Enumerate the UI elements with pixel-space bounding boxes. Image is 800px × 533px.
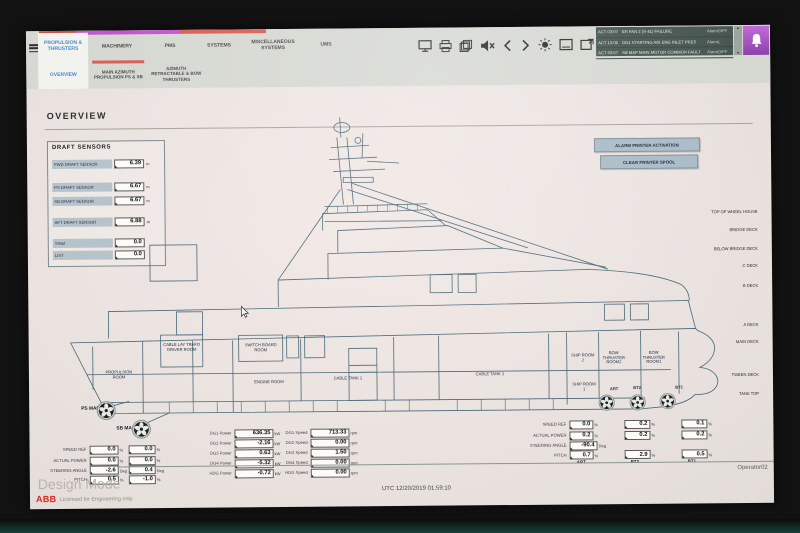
- license-note: Licensed for Engineering only: [60, 496, 133, 503]
- hdg-power-value: -0.72: [235, 469, 274, 478]
- alarm-text: SB MAP MAIN MOTOR COMMON FAULT: [622, 50, 707, 56]
- dg2-speed-value: 0.00: [310, 438, 349, 447]
- deck-label-tween-deck: TWEEN DECK: [687, 372, 759, 378]
- bt1-propeller-icon: [659, 393, 676, 410]
- alarm-time: ACT 03:57: [596, 51, 622, 56]
- screen-switch-icon[interactable]: [580, 38, 594, 50]
- alarm-bell-button[interactable]: [743, 26, 769, 55]
- dg4-speed-value: 0.00: [311, 458, 350, 467]
- room-label-switchboard: SWITCH BOARD ROOM: [241, 343, 281, 353]
- deck-label-a-deck: A DECK: [686, 322, 758, 328]
- unit-label: %: [652, 452, 656, 457]
- bow-pitch-label: PITCH: [510, 452, 567, 457]
- unit-label: %: [157, 477, 161, 482]
- deck-label-b-deck: B DECK: [686, 283, 758, 289]
- room-label-ship-room2: SHIP ROOM 2: [570, 353, 596, 363]
- sb-actual-power-value: 0.0: [129, 456, 156, 465]
- screen-icon[interactable]: [559, 38, 573, 50]
- dg2-power-value: -2.16: [234, 439, 273, 448]
- unit-label: Deg: [157, 468, 164, 473]
- dg1-speed-label: DG1 Speed: [279, 430, 307, 435]
- tab-label: PROPULSION & THRUSTERS: [38, 41, 88, 53]
- header-toolbar: [418, 34, 598, 56]
- tab-label: MACHINERY: [102, 44, 132, 50]
- subtab-label: OVERVIEW: [50, 72, 77, 78]
- tab-systems[interactable]: SYSTEMS: [196, 33, 242, 59]
- hmi-screen: PROPULSION & THRUSTERS MACHINERY PMS SYS…: [26, 25, 774, 509]
- alarm-status: AlarmL: [707, 39, 733, 44]
- dg3-speed-label: DG3 Speed: [280, 450, 308, 455]
- subtab-label: AZIMUTH RETRACTABLE & BOW THRUSTERS: [150, 66, 202, 83]
- printer-icon[interactable]: [439, 39, 452, 52]
- alarm-scrollbar[interactable]: ▲▼: [734, 26, 742, 55]
- alarm-status: AlarmDIFF: [707, 28, 733, 33]
- thruster-label-art: ART: [602, 387, 626, 392]
- dg2-power-label: DG2 Power: [198, 440, 232, 445]
- speaker-mute-icon[interactable]: [480, 39, 495, 52]
- art-pitch-value: 0.7: [570, 450, 594, 459]
- alarm-time: ACT 03:07: [596, 29, 622, 34]
- room-label-cable-tank2: CABLE TANK 2: [323, 376, 373, 381]
- utc-clock: UTC 12/20/2019 01:59:10: [382, 486, 451, 493]
- steering-angle-label: STEERING ANGLE: [32, 467, 87, 472]
- dg3-speed-value: 1.50: [311, 448, 350, 457]
- art-speed-ref-value: 0.0: [569, 420, 593, 429]
- tab-label: UMS: [320, 43, 331, 49]
- speed-ref-label: SPEED REF: [32, 447, 87, 452]
- ship-diagram: PROPULSION ROOM CABLE LAY TRAFO DRIVER R…: [47, 100, 766, 451]
- dg1-speed-value: 713.33: [310, 428, 349, 437]
- laptop-hinge: [0, 519, 800, 533]
- unit-label: %: [594, 422, 598, 427]
- art-actual-power-value: 0.2: [569, 431, 593, 440]
- unit-label: %: [120, 447, 124, 452]
- subtab-azimuth-retractable-bow[interactable]: AZIMUTH RETRACTABLE & BOW THRUSTERS: [150, 60, 202, 88]
- bt2-actual-power-value: 0.2: [624, 430, 650, 439]
- thruster-label-bt1: BT1: [668, 385, 690, 390]
- tab-machinery[interactable]: MACHINERY: [92, 34, 142, 60]
- tab-miscellaneous-systems[interactable]: MISCELLANEOUS SYSTEMS: [244, 33, 302, 60]
- unit-label: %: [157, 458, 161, 463]
- ps-speed-ref-value: 0.0: [90, 445, 119, 454]
- subtab-label: MAIN AZIMUTH PROPULSION PS & SB: [92, 69, 144, 80]
- design-mode-watermark: Design Mode: [38, 475, 121, 492]
- monitor-icon[interactable]: [418, 39, 432, 52]
- tab-label: MISCELLANEOUS SYSTEMS: [244, 40, 302, 52]
- unit-label: %: [651, 422, 655, 427]
- alarm-text: ER FAN 2 (S-41) FAILURE: [622, 29, 707, 35]
- room-label-ship-room1: SHIP ROOM 1: [571, 382, 597, 392]
- tab-propulsion-thrusters[interactable]: PROPULSION & THRUSTERS: [38, 33, 88, 61]
- dg1-power-label: DG1 Power: [197, 430, 231, 435]
- ps-steering-angle-value: -2.6: [90, 465, 119, 474]
- subtab-main-azimuth-propulsion[interactable]: MAIN AZIMUTH PROPULSION PS & SB: [92, 60, 144, 88]
- unit-label: Deg: [599, 443, 606, 448]
- hdg-speed-label: HDG Speed: [280, 470, 308, 475]
- brightness-icon[interactable]: [538, 38, 552, 52]
- tab-pms[interactable]: PMS: [150, 34, 190, 60]
- dg3-power-label: DG3 Power: [198, 450, 232, 455]
- alarm-status: AlarmDIFF: [707, 50, 733, 55]
- art-propeller-icon: [598, 394, 615, 411]
- alarm-row[interactable]: ACT 03:57 SB MAP MAIN MOTOR COMMON FAULT…: [596, 47, 733, 59]
- thruster-label-bt2: BT2: [626, 386, 648, 391]
- tab-label: SYSTEMS: [207, 44, 231, 50]
- prev-arrow-icon[interactable]: [502, 39, 513, 52]
- room-label-engine: ENGINE ROOM: [244, 380, 294, 385]
- menu-bar: PROPULSION & THRUSTERS MACHINERY PMS SYS…: [26, 25, 770, 89]
- ps-map-propeller-icon: [96, 400, 116, 420]
- alarm-bell-icon: [749, 33, 762, 48]
- subtab-overview[interactable]: OVERVIEW: [38, 61, 88, 89]
- room-label-cable-lay: CABLE LAY TRAFO DRIVER ROOM: [162, 343, 202, 353]
- bow-speed-ref-label: SPEED REF: [509, 422, 566, 427]
- deck-label-main-deck: MAIN DECK: [687, 339, 759, 345]
- alarm-text: DG1 STARTING AIR ENG INLET PRES: [622, 39, 707, 45]
- bow-steering-angle-label: STEERING ANGLE: [510, 443, 567, 448]
- unit-label: %: [708, 432, 712, 437]
- monitor-screen: PROPULSION & THRUSTERS MACHINERY PMS SYS…: [26, 25, 774, 509]
- pages-icon[interactable]: [459, 39, 473, 52]
- unit-label: %: [709, 452, 713, 457]
- dg2-speed-label: DG2 Speed: [280, 440, 308, 445]
- scroll-up-icon[interactable]: ▲: [736, 26, 740, 30]
- alarm-list: ACT 03:07 ER FAN 2 (S-41) FAILURE AlarmD…: [596, 26, 733, 56]
- bt2-speed-ref-value: 0.2: [624, 419, 650, 428]
- unit-label: %: [120, 458, 124, 463]
- hdg-power-label: HDG Power: [198, 470, 232, 475]
- room-label-bow-thruster-room2: BOW THRUSTER ROOM2: [599, 351, 629, 365]
- unit-label: %: [594, 433, 598, 438]
- operator-name: Operator02: [737, 465, 767, 471]
- deck-label-top-of-wheel-house: TOP OF WHEEL HOUSE: [686, 209, 758, 215]
- unit-label: rpm: [351, 440, 358, 445]
- bt1-speed-ref-value: 0.1: [681, 419, 707, 428]
- unit-label: %: [157, 447, 161, 452]
- sb-pitch-value: -1.0: [129, 475, 156, 484]
- bt2-pitch-value: 2.9: [625, 450, 651, 459]
- mouse-cursor: [240, 305, 249, 318]
- actual-power-label: ACTUAL POWER: [32, 458, 87, 463]
- deck-label-below-bridge-deck: BELOW BRIDGE DECK: [686, 246, 758, 252]
- unit-label: %: [651, 433, 655, 438]
- dg3-power-value: 0.63: [235, 449, 274, 458]
- hdg-speed-value: 0.00: [311, 468, 350, 477]
- room-label-cable-tank1: CABLE TANK 1: [465, 372, 515, 377]
- ps-actual-power-value: 0.0: [90, 456, 119, 465]
- bt2-propeller-icon: [629, 394, 646, 411]
- tab-ums[interactable]: UMS: [306, 32, 346, 58]
- unit-label: Deg: [120, 468, 127, 473]
- next-arrow-icon[interactable]: [520, 38, 531, 51]
- deck-label-tank-top: TANK TOP: [687, 391, 759, 397]
- sb-speed-ref-value: 0.0: [129, 445, 156, 454]
- tab-label: PMS: [165, 44, 176, 50]
- room-label-propulsion: PROPULSION ROOM: [101, 370, 137, 380]
- ship-outline: [47, 100, 766, 451]
- abb-logo: ABB: [36, 494, 56, 504]
- dg1-power-value: 636.35: [234, 429, 273, 438]
- bow-actual-power-label: ACTUAL POWER: [509, 433, 566, 438]
- unit-label: rpm: [351, 450, 358, 455]
- unit-label: %: [595, 453, 599, 458]
- unit-label: %: [708, 421, 712, 426]
- alarm-time: ACT 13:05: [596, 40, 622, 45]
- art-steering-angle-value: -90.4: [570, 441, 598, 450]
- deck-label-c-deck: C DECK: [686, 263, 758, 269]
- room-label-bow-thruster-room1: BOW THRUSTER ROOM1: [639, 351, 669, 365]
- dg4-power-value: -5.32: [235, 459, 274, 468]
- bt1-actual-power-value: 0.2: [681, 430, 707, 439]
- unit-label: rpm: [350, 430, 357, 435]
- scroll-down-icon[interactable]: ▼: [736, 51, 740, 55]
- unit-label: rpm: [351, 470, 358, 475]
- deck-label-bridge-deck: BRIDGE DECK: [686, 227, 758, 233]
- bt1-pitch-value: 0.5: [682, 449, 708, 458]
- sb-map-propeller-icon: [131, 419, 151, 439]
